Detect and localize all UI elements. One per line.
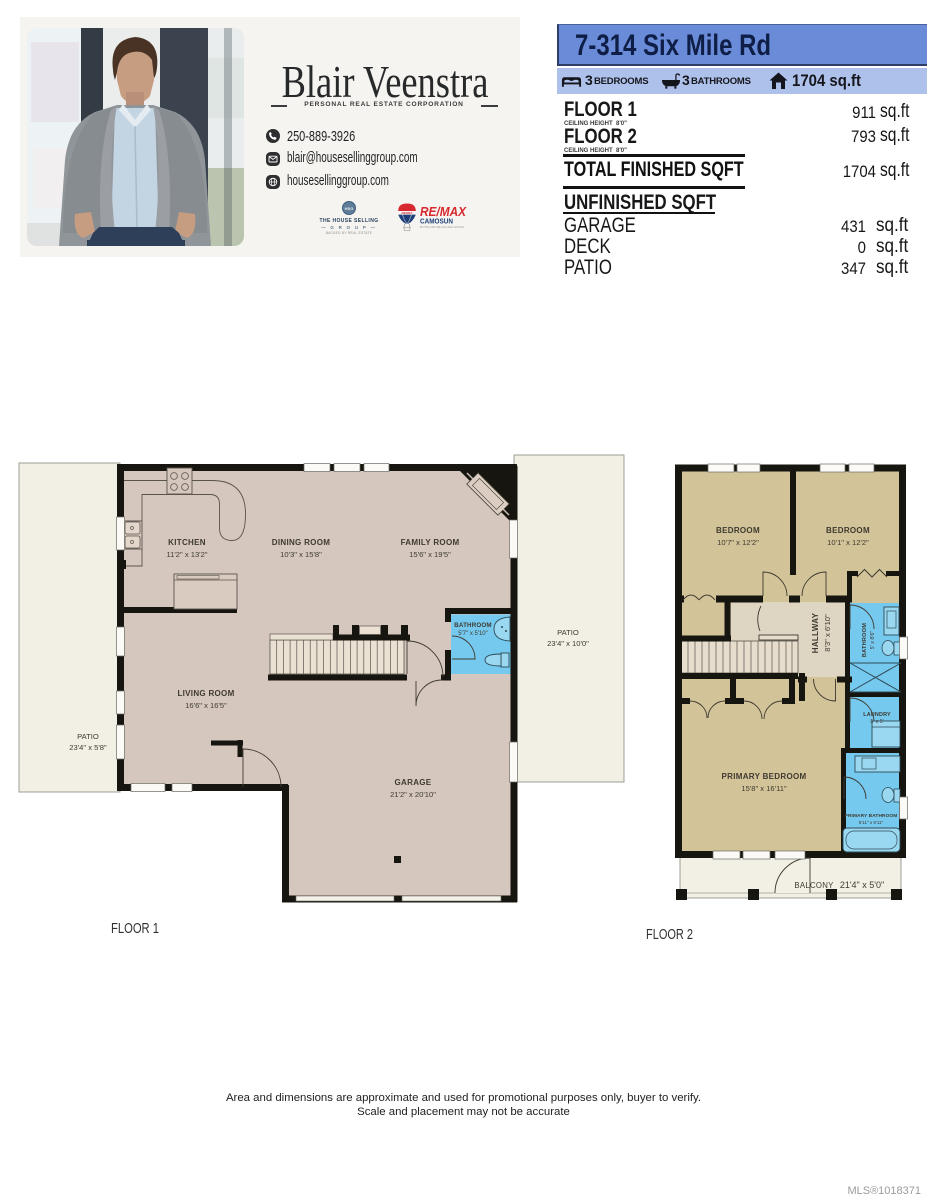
- svg-text:15'8" x 16'11": 15'8" x 16'11": [741, 784, 787, 793]
- svg-text:PRIMARY BEDROOM: PRIMARY BEDROOM: [722, 772, 807, 781]
- svg-text:5' x 8'6": 5' x 8'6": [870, 631, 876, 650]
- svg-text:FLOOR 1: FLOOR 1: [111, 920, 159, 937]
- svg-text:10'1" x 12'2": 10'1" x 12'2": [827, 538, 869, 547]
- svg-text:BEDROOM: BEDROOM: [826, 526, 870, 535]
- svg-text:BATHROOM: BATHROOM: [862, 623, 868, 657]
- svg-text:5'7" x 5'10": 5'7" x 5'10": [458, 631, 488, 637]
- svg-text:FLOOR 2: FLOOR 2: [646, 926, 693, 943]
- svg-text:FAMILY ROOM: FAMILY ROOM: [401, 538, 460, 547]
- svg-text:DINING ROOM: DINING ROOM: [272, 538, 330, 547]
- svg-text:PATIO: PATIO: [77, 732, 99, 741]
- svg-text:23'4" x 10'0": 23'4" x 10'0": [547, 639, 589, 648]
- svg-text:LIVING ROOM: LIVING ROOM: [177, 689, 234, 698]
- svg-text:PRIMARY BATHROOM: PRIMARY BATHROOM: [845, 813, 898, 819]
- svg-text:23'4" x 5'8": 23'4" x 5'8": [69, 743, 107, 752]
- svg-text:BATHROOM: BATHROOM: [454, 622, 492, 629]
- svg-text:RE/MAX: RE/MAX: [402, 211, 413, 215]
- svg-text:16'6" x 16'5": 16'6" x 16'5": [185, 701, 227, 710]
- svg-text:21'4" x 5'0": 21'4" x 5'0": [840, 880, 884, 890]
- svg-text:15'6" x 19'5": 15'6" x 19'5": [409, 550, 451, 559]
- svg-text:5'11" x 9'11": 5'11" x 9'11": [859, 820, 884, 825]
- svg-text:BUYING AND SELLING REAL ESTATE: BUYING AND SELLING REAL ESTATE: [420, 225, 464, 229]
- svg-text:21'2" x 20'10": 21'2" x 20'10": [390, 790, 436, 799]
- svg-text:BALCONY: BALCONY: [794, 881, 834, 890]
- svg-text:LAUNDRY: LAUNDRY: [863, 712, 891, 718]
- svg-text:GARAGE: GARAGE: [395, 778, 432, 787]
- svg-text:HALLWAY: HALLWAY: [811, 612, 820, 653]
- svg-text:10'3" x 15'8": 10'3" x 15'8": [280, 550, 322, 559]
- svg-text:10'7" x 12'2": 10'7" x 12'2": [717, 538, 759, 547]
- svg-text:BEDROOM: BEDROOM: [716, 526, 760, 535]
- svg-text:5' x 5': 5' x 5': [870, 719, 883, 725]
- svg-text:KITCHEN: KITCHEN: [168, 538, 206, 547]
- svg-text:11'2" x 13'2": 11'2" x 13'2": [166, 550, 207, 559]
- svg-text:PATIO: PATIO: [557, 628, 579, 637]
- svg-text:8'3" x 6'10": 8'3" x 6'10": [823, 614, 832, 652]
